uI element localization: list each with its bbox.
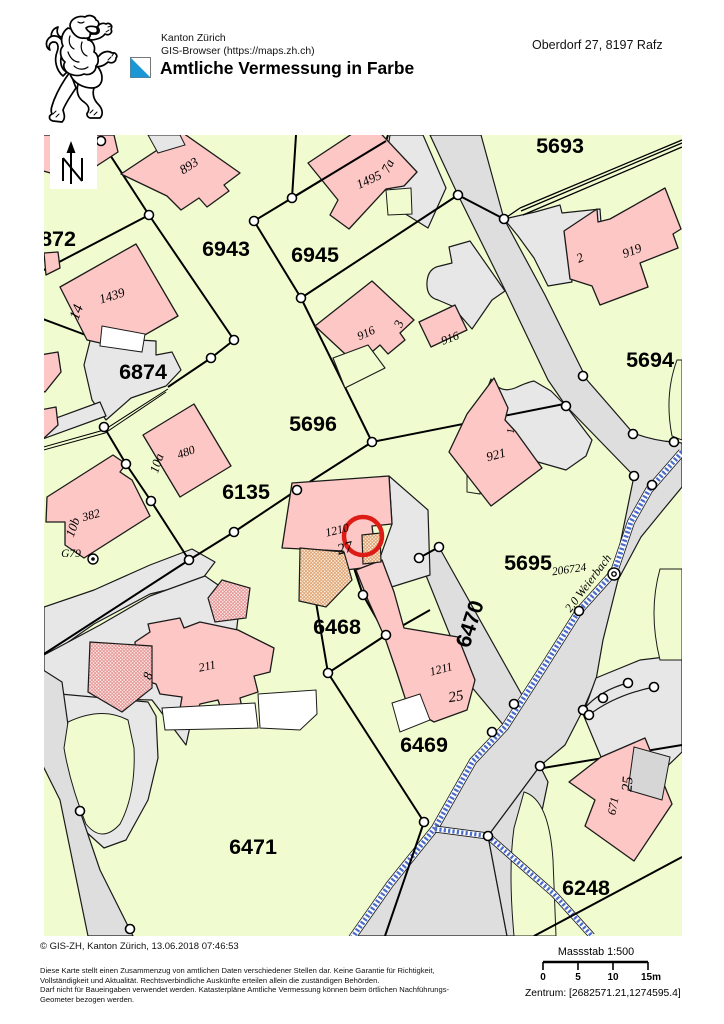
svg-text:G79: G79 (61, 548, 81, 560)
svg-text:6135: 6135 (222, 480, 270, 504)
svg-text:6945: 6945 (291, 243, 339, 267)
svg-text:10: 10 (607, 972, 619, 983)
svg-text:872: 872 (40, 227, 76, 251)
svg-text:6468: 6468 (313, 615, 361, 639)
svg-text:6471: 6471 (229, 835, 277, 859)
svg-text:5695: 5695 (504, 551, 552, 575)
svg-text:6469: 6469 (400, 733, 448, 757)
svg-text:6248: 6248 (562, 876, 610, 900)
svg-text:0: 0 (540, 972, 546, 983)
svg-text:25: 25 (619, 775, 636, 792)
svg-text:5: 5 (575, 972, 581, 983)
svg-text:5694: 5694 (626, 348, 674, 372)
svg-text:1: 1 (505, 428, 517, 434)
svg-text:6874: 6874 (119, 360, 167, 384)
svg-text:6943: 6943 (202, 237, 250, 261)
svg-text:5696: 5696 (289, 412, 337, 436)
svg-text:5693: 5693 (536, 134, 584, 158)
svg-text:15m: 15m (641, 972, 661, 983)
